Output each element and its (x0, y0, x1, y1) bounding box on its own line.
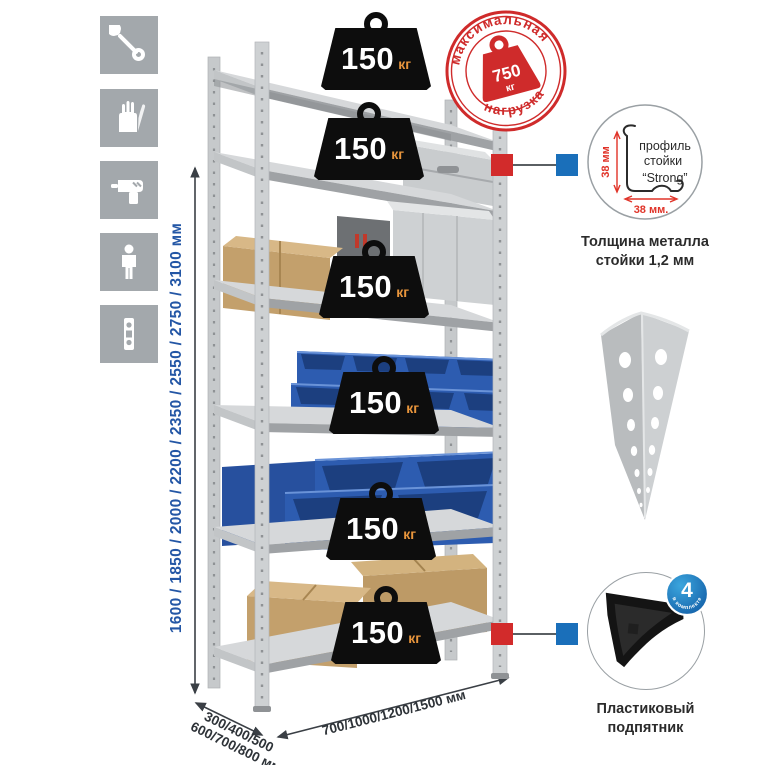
profile-dim-vertical: 38 мм (600, 146, 612, 178)
angle-post-image (595, 305, 695, 525)
max-load-stamp: максимальная нагрузка 750 кг (440, 6, 572, 138)
wrench-icon (100, 16, 158, 74)
profile-dim-horizontal: 38 мм. (634, 204, 669, 216)
profile-label-3: “Strong” (642, 171, 687, 185)
profile-label-2: стойки (644, 154, 682, 168)
gloves-icon (100, 89, 158, 147)
product-infographic: 1600 / 1850 / 2000 / 2200 / 2350 / 2550 … (0, 0, 765, 765)
connector-red-bottom (491, 623, 513, 645)
profile-label-1: профиль (639, 139, 691, 153)
foot-caption: Пластиковый подпятник (573, 700, 718, 738)
shelf-load-badge-5: 150кг (326, 482, 436, 560)
shelf-load-badge-1: 150кг (321, 12, 431, 90)
badge-number: 4 (681, 579, 693, 602)
profile-callout: 38 мм 38 мм. профиль стойки “Strong” (579, 98, 711, 230)
post-icon (100, 305, 158, 363)
height-dimension-label: 1600 / 1850 / 2000 / 2200 / 2350 / 2550 … (168, 163, 186, 693)
shelf-load-badge-2: 150кг (314, 102, 424, 180)
shelf-load-badge-6: 150кг (331, 586, 441, 664)
drill-icon (100, 161, 158, 219)
shelf-load-badge-3: 150кг (319, 240, 429, 318)
connector-red-top (491, 154, 513, 176)
person-icon (100, 233, 158, 291)
included-count-badge: 4 в комплекте (664, 571, 710, 617)
connector-blue-top (556, 154, 578, 176)
profile-caption: Толщина металла стойки 1,2 мм (565, 233, 725, 271)
connector-blue-bottom (556, 623, 578, 645)
shelf-load-badge-4: 150кг (329, 356, 439, 434)
